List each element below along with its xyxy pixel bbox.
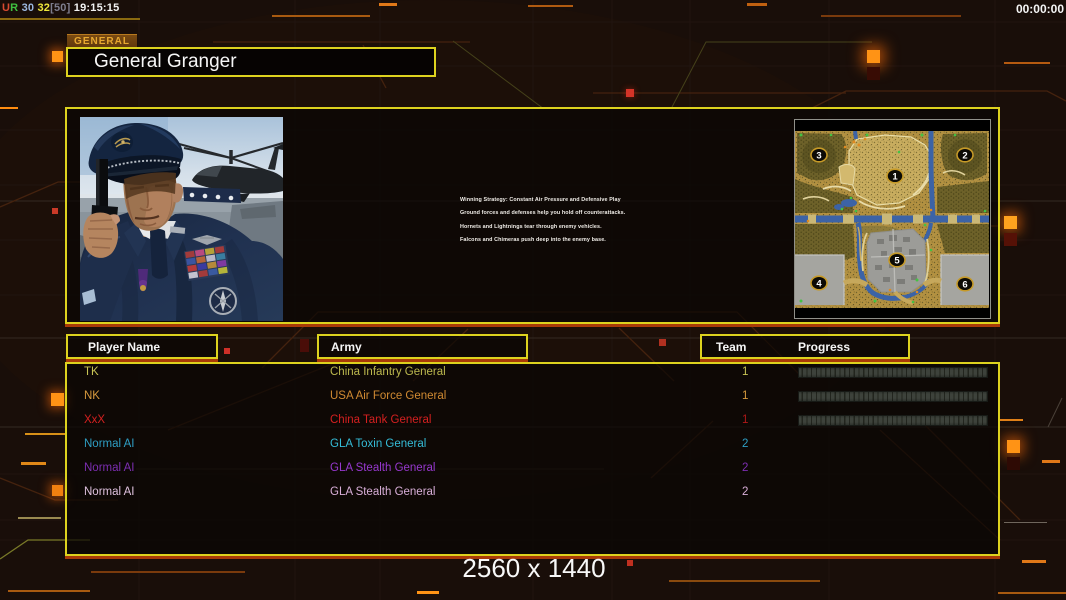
svg-text:2: 2 (962, 151, 967, 162)
svg-text:5: 5 (894, 256, 900, 267)
svg-text:3: 3 (816, 151, 821, 162)
svg-text:4: 4 (816, 279, 822, 290)
svg-text:6: 6 (962, 280, 967, 291)
svg-text:1: 1 (892, 172, 898, 183)
